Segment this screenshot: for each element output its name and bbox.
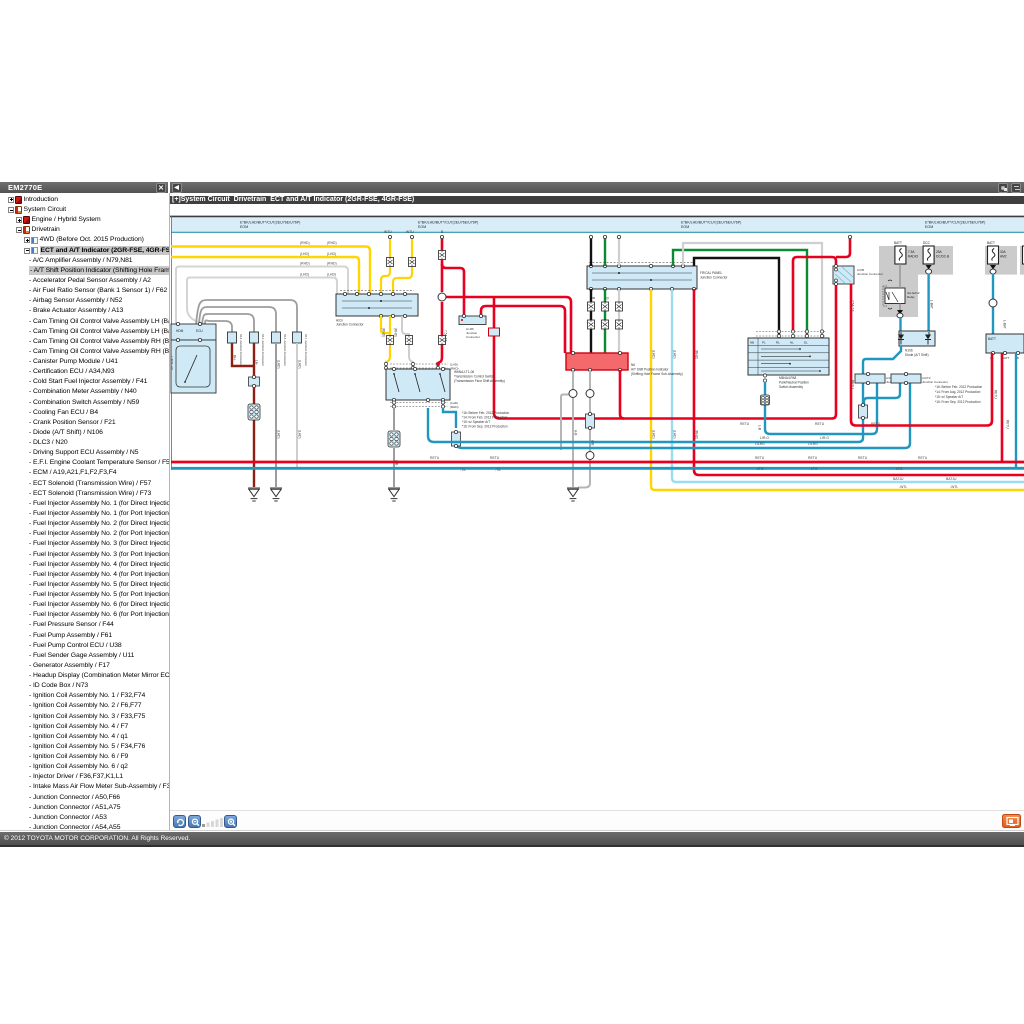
svg-text:*16: From Sep. 2012 Production: *16: From Sep. 2012 Production <box>462 425 508 429</box>
svg-text:(LHD): (LHD) <box>277 360 281 369</box>
svg-text:PL: PL <box>762 341 766 345</box>
svg-text:(LHD): (LHD) <box>673 430 677 439</box>
svg-text:*16: Before Feb. 2012 Producti: *16: Before Feb. 2012 Production <box>935 385 983 389</box>
svg-text:NB: NB <box>750 341 754 345</box>
svg-text:A-B: A-B <box>395 460 399 465</box>
svg-text:L-B: L-B <box>758 425 762 430</box>
svg-text:WTU: WTU <box>406 230 414 234</box>
svg-text:RETU: RETU <box>871 422 881 426</box>
svg-text:*16: Before Feb. 2012 Producti: *16: Before Feb. 2012 Production <box>462 411 510 415</box>
svg-text:E*BK/LHD/BUT*/CU7(2EU76E/U76P): E*BK/LHD/BUT*/CU7(2EU76E/U76P) <box>681 221 741 225</box>
svg-text:Junction Connector: Junction Connector <box>922 380 948 384</box>
svg-text:7.5A: 7.5A <box>908 250 915 254</box>
svg-text:Diode (A/T Shift): Diode (A/T Shift) <box>905 353 929 357</box>
svg-text:-LTG: -LTG <box>756 467 764 471</box>
svg-text:N6: N6 <box>631 363 635 367</box>
svg-text:S17 Junction Connector: S17 Junction Connector <box>304 334 308 366</box>
svg-text:(LHD): (LHD) <box>298 430 302 439</box>
svg-text:ECU: ECU <box>196 329 203 333</box>
svg-text:B: B <box>592 297 596 299</box>
svg-text:LH-: LH- <box>255 360 259 365</box>
svg-text:W6NAJ-T1-06: W6NAJ-T1-06 <box>454 370 474 374</box>
svg-text:S12 Junction Connector: S12 Junction Connector <box>239 334 243 366</box>
svg-text:LILRG: LILRG <box>755 442 765 446</box>
svg-text:EOM: EOM <box>418 225 426 229</box>
svg-text:Connector: Connector <box>466 335 480 339</box>
svg-text:-WTL: -WTL <box>899 485 907 489</box>
svg-text:HDM: HDM <box>176 329 184 333</box>
svg-text:(RHD): (RHD) <box>300 241 310 245</box>
svg-text:(RHD): (RHD) <box>300 262 310 266</box>
svg-text:DL: DL <box>804 341 808 345</box>
svg-text:7.5A-T/L: 7.5A-T/L <box>851 300 855 312</box>
svg-text:RETU: RETU <box>1006 420 1010 429</box>
svg-text:RETU: RETU <box>918 456 928 460</box>
svg-text:BATJU: BATJU <box>946 477 957 481</box>
svg-text:E*BK/LHD/BUT*/CU7(2EU76E/U76P): E*BK/LHD/BUT*/CU7(2EU76E/U76P) <box>418 221 478 225</box>
svg-text:EOM: EOM <box>681 225 689 229</box>
svg-text:LIR-G: LIR-G <box>760 436 769 440</box>
svg-text:A/T Shift Position Indicator: A/T Shift Position Indicator <box>631 368 669 372</box>
svg-text:DCC: DCC <box>923 241 931 245</box>
svg-text:NL: NL <box>790 341 794 345</box>
svg-text:RETU: RETU <box>808 456 818 460</box>
svg-text:RETU: RETU <box>994 390 998 399</box>
svg-text:N106: N106 <box>905 349 913 353</box>
svg-text:(RHD): (RHD) <box>327 262 337 266</box>
svg-text:RETU: RETU <box>740 422 750 426</box>
svg-text:(Transmission Floor Shift Asse: (Transmission Floor Shift Assembly) <box>454 379 505 383</box>
svg-text:AM2: AM2 <box>1000 255 1007 259</box>
svg-text:RETU: RETU <box>858 456 868 460</box>
svg-text:*15: w/ Speaker A/T: *15: w/ Speaker A/T <box>935 395 963 399</box>
svg-text:*14: From Aug. 2012 Production: *14: From Aug. 2012 Production <box>935 390 981 394</box>
svg-text:RETU: RETU <box>755 456 765 460</box>
svg-text:(LHD): (LHD) <box>673 350 677 359</box>
svg-text:E*BK/LHD/BUT*/CU7(2EU76E/U76P): E*BK/LHD/BUT*/CU7(2EU76E/U76P) <box>240 221 300 225</box>
svg-text:(Shifting Hole Frame Sub-Assem: (Shifting Hole Frame Sub-Assembly) <box>631 372 683 376</box>
svg-text:(RHD): (RHD) <box>327 241 337 245</box>
svg-text:BATT: BATT <box>987 241 995 245</box>
svg-text:*16: From Sep. 2012 Production: *16: From Sep. 2012 Production <box>935 400 981 404</box>
svg-text:E*BK/LHD/BUT*/CU7(2EU76E/U76P): E*BK/LHD/BUT*/CU7(2EU76E/U76P) <box>925 221 985 225</box>
svg-text:Switch Assembly: Switch Assembly <box>779 385 803 389</box>
svg-text:RETU: RETU <box>430 456 440 460</box>
svg-text:(LHD): (LHD) <box>277 430 281 439</box>
svg-text:Relay: Relay <box>907 295 915 299</box>
svg-text:(LHD): (LHD) <box>652 430 656 439</box>
svg-text:-T/L: -T/L <box>460 468 466 472</box>
svg-text:*14: From Feb. 2012 Production: *14: From Feb. 2012 Production <box>462 416 508 420</box>
svg-text:-LTG: -LTG <box>810 467 818 471</box>
svg-text:(RHD): (RHD) <box>450 405 459 409</box>
svg-text:30A: 30A <box>1000 250 1007 254</box>
svg-text:RETU: RETU <box>851 380 855 389</box>
svg-text:-WTL: -WTL <box>950 485 958 489</box>
svg-text:(RHD): (RHD) <box>695 350 699 359</box>
svg-text:FR/CAL PANEL: FR/CAL PANEL <box>700 271 723 275</box>
svg-text:Transmission Control Switch: Transmission Control Switch <box>454 375 494 379</box>
svg-text:(LHD): (LHD) <box>652 350 656 359</box>
svg-text:LILRG: LILRG <box>808 442 818 446</box>
svg-text:DC/DC-B: DC/DC-B <box>936 255 949 259</box>
svg-text:A-B: A-B <box>574 430 578 435</box>
svg-text:BATT: BATT <box>988 337 996 341</box>
svg-text:A-B: A-B <box>591 440 595 445</box>
svg-text:(RHD): (RHD) <box>394 328 398 337</box>
svg-text:RL: RL <box>776 341 780 345</box>
svg-text:BATJU: BATJU <box>893 477 904 481</box>
svg-text:L-BAT: L-BAT <box>930 300 934 309</box>
svg-text:RETU: RETU <box>490 456 500 460</box>
svg-text:(RHD): (RHD) <box>695 430 699 439</box>
svg-text:(RHD): (RHD) <box>382 328 386 337</box>
svg-text:Junction Connector: Junction Connector <box>857 272 883 276</box>
svg-text:A/T SHIFT: A/T SHIFT <box>170 356 174 370</box>
svg-text:(LHD): (LHD) <box>300 252 309 256</box>
svg-text:25A: 25A <box>936 250 943 254</box>
svg-text:M6NA/LPA8: M6NA/LPA8 <box>779 376 797 380</box>
svg-text:7.5A-T/L: 7.5A-T/L <box>444 330 448 342</box>
svg-text:RETU: RETU <box>815 422 825 426</box>
svg-text:(LHD): (LHD) <box>298 360 302 369</box>
svg-text:S14 Junction Connector: S14 Junction Connector <box>283 334 287 366</box>
svg-text:EOM: EOM <box>925 225 933 229</box>
svg-text:L-BAT: L-BAT <box>1003 320 1007 329</box>
svg-text:(LHD): (LHD) <box>327 273 336 277</box>
svg-text:S13 Junction Connector: S13 Junction Connector <box>261 334 265 366</box>
svg-text:WTU: WTU <box>384 230 392 234</box>
svg-text:-T/L: -T/L <box>495 468 501 472</box>
svg-text:(LHD): (LHD) <box>327 252 336 256</box>
svg-text:Park/Neutral Position: Park/Neutral Position <box>779 381 809 385</box>
svg-text:RH-: RH- <box>233 355 237 361</box>
svg-text:EOM: EOM <box>240 225 248 229</box>
svg-text:BATT: BATT <box>894 241 902 245</box>
svg-text:RADIO: RADIO <box>908 255 919 259</box>
svg-text:LIR-G: LIR-G <box>820 436 829 440</box>
svg-text:Junction Connector: Junction Connector <box>700 276 728 280</box>
svg-text:-LTG: -LTG <box>895 467 903 471</box>
svg-text:Junction Connector: Junction Connector <box>336 323 364 327</box>
svg-text:*15: w/ Speaker A/T: *15: w/ Speaker A/T <box>462 420 490 424</box>
svg-text:(LHD): (LHD) <box>300 273 309 277</box>
